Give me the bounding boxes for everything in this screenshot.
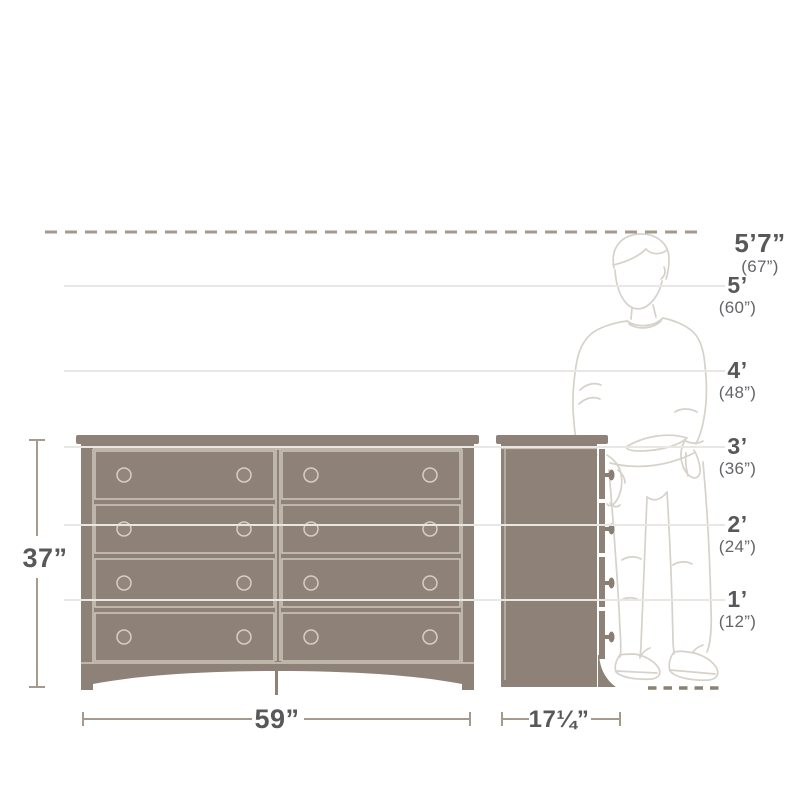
person-left-shoe (615, 654, 660, 679)
person-face (615, 270, 662, 309)
height-marker-feet-label: 5’7” (712, 230, 800, 257)
height-marker-feet-label: 4’ (695, 358, 780, 383)
height-marker-1ft: 1’ (12”) (695, 587, 780, 632)
dresser-front-view (76, 435, 479, 695)
height-marker-4ft: 4’ (48”) (695, 358, 780, 403)
side-body (501, 444, 597, 687)
height-marker-inches-label: (12”) (695, 612, 780, 632)
height-marker-feet-label: 3’ (695, 434, 780, 459)
height-marker-5ft7: 5’7” (67”) (712, 230, 800, 277)
person-hair-fringe (613, 249, 667, 265)
height-marker-2ft: 2’ (24”) (695, 512, 780, 557)
person-left-leg (609, 470, 621, 657)
dimension-diagram: 5’7” (67”) 5’ (60”) 4’ (48”) 3’ (36”) 2’… (0, 0, 800, 800)
height-marker-3ft: 3’ (36”) (695, 434, 780, 479)
height-marker-feet-label: 5’ (695, 273, 780, 298)
person-sweater-fold (626, 435, 687, 451)
dresser-top-lip (76, 435, 479, 444)
height-dimension-label: 37” (14, 543, 76, 574)
width-dimension-label: 59” (246, 704, 308, 735)
person-right-shoe (669, 651, 718, 680)
height-marker-5ft: 5’ (60”) (695, 273, 780, 318)
side-top-lip (496, 435, 608, 444)
depth-dimension-label: 17¼” (526, 706, 592, 734)
height-marker-inches-label: (60”) (695, 298, 780, 318)
height-marker-inches-label: (24”) (695, 537, 780, 557)
person-ear (661, 267, 665, 279)
dresser-side-view (496, 435, 616, 687)
side-drawer-edge (599, 449, 605, 499)
height-marker-feet-label: 2’ (695, 512, 780, 537)
height-marker-inches-label: (48”) (695, 383, 780, 403)
dresser-apron-center-tick (275, 671, 278, 695)
person-hair (613, 234, 669, 279)
height-marker-feet-label: 1’ (695, 587, 780, 612)
height-marker-inches-label: (36”) (695, 459, 780, 479)
diagram-graphics (0, 0, 800, 800)
